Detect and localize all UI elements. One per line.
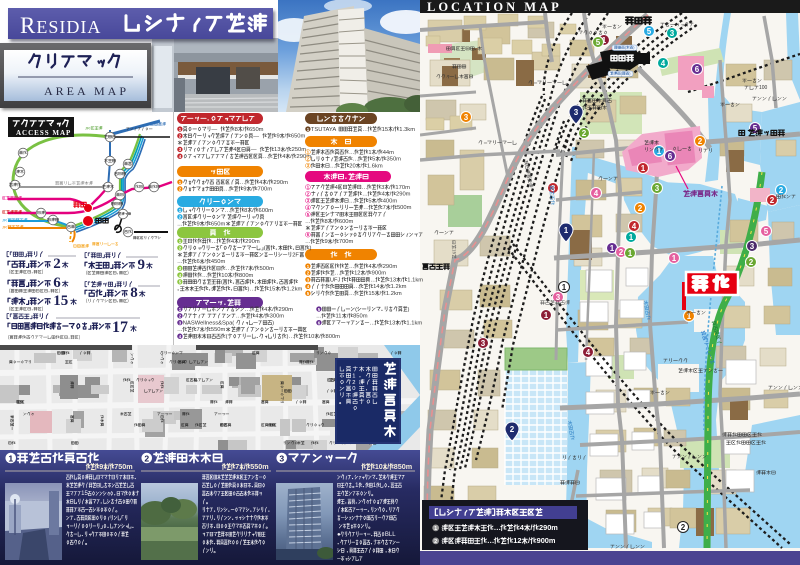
svg-text:500m: 500m xyxy=(259,266,274,272)
svg-text:15: 15 xyxy=(81,491,88,497)
svg-text:…: … xyxy=(363,205,369,211)
svg-text:/: / xyxy=(204,327,206,333)
svg-text:290m: 290m xyxy=(245,239,260,245)
svg-text:290m: 290m xyxy=(278,307,293,313)
svg-text:450m: 450m xyxy=(211,259,226,265)
svg-text:/: / xyxy=(319,334,321,340)
svg-text:/: / xyxy=(380,291,382,297)
svg-text:10: 10 xyxy=(221,273,227,279)
svg-text:350m: 350m xyxy=(387,157,402,163)
svg-text:250m: 250m xyxy=(292,147,307,153)
svg-text:…: … xyxy=(177,327,183,333)
svg-text:850m: 850m xyxy=(353,314,368,320)
svg-text:0: 0 xyxy=(352,386,355,392)
svg-text:3: 3 xyxy=(381,185,384,191)
svg-text:9: 9 xyxy=(324,239,327,245)
svg-text:AREA MAP: AREA MAP xyxy=(44,84,129,98)
svg-text:/: / xyxy=(263,314,265,320)
svg-text:4: 4 xyxy=(368,264,372,270)
svg-text:…: … xyxy=(225,208,231,214)
svg-text:…: … xyxy=(211,239,217,245)
svg-text:—: — xyxy=(211,127,217,133)
svg-text:8: 8 xyxy=(235,127,238,133)
svg-text:)…: )… xyxy=(248,286,256,292)
svg-text:/: / xyxy=(400,320,402,326)
svg-text:…: … xyxy=(226,266,232,272)
svg-text:/: / xyxy=(401,277,403,283)
svg-text:600m: 600m xyxy=(339,219,354,225)
svg-text:1: 1 xyxy=(368,150,371,156)
svg-text:…: … xyxy=(177,221,183,227)
svg-text:1: 1 xyxy=(373,483,377,489)
svg-text:…: … xyxy=(305,219,311,225)
svg-text:…: … xyxy=(349,291,355,297)
svg-text:●: ● xyxy=(337,532,341,538)
svg-text:8: 8 xyxy=(244,208,247,214)
svg-text:(: ( xyxy=(9,269,11,274)
svg-text:600m: 600m xyxy=(259,208,274,214)
svg-text:8: 8 xyxy=(130,285,138,301)
svg-text:1.2km: 1.2km xyxy=(287,286,303,292)
svg-text:700m: 700m xyxy=(258,187,273,193)
svg-text:…: … xyxy=(369,320,375,326)
svg-text:/: / xyxy=(393,127,395,133)
svg-text:5: 5 xyxy=(372,157,375,163)
svg-text:TSUTAYA: TSUTAYA xyxy=(311,127,337,133)
svg-text:): ) xyxy=(42,269,44,274)
svg-text:/: / xyxy=(272,307,274,313)
svg-text:/: / xyxy=(380,157,382,163)
svg-text:…: … xyxy=(362,185,368,191)
svg-text:…: … xyxy=(349,150,355,156)
svg-text:2: 2 xyxy=(53,256,61,272)
svg-text:/: / xyxy=(267,180,269,186)
svg-text:/: / xyxy=(332,239,334,245)
svg-text:1.3km: 1.3km xyxy=(399,127,415,133)
svg-text:BLL: BLL xyxy=(385,532,396,538)
svg-text:6: 6 xyxy=(196,259,199,265)
svg-text:): ) xyxy=(127,298,129,303)
svg-text:4: 4 xyxy=(233,147,237,153)
svg-text:/: / xyxy=(204,221,206,227)
svg-text:10: 10 xyxy=(308,334,314,340)
svg-text:/: / xyxy=(280,286,282,292)
svg-text:/: / xyxy=(284,134,286,140)
svg-text:…: … xyxy=(335,271,341,277)
svg-text:10: 10 xyxy=(375,462,383,471)
svg-text:…: … xyxy=(236,314,242,320)
svg-text:/: / xyxy=(347,314,349,320)
svg-text:(: ( xyxy=(9,288,11,293)
svg-text:…: … xyxy=(354,284,360,290)
svg-text:…: … xyxy=(224,187,230,193)
svg-text:7: 7 xyxy=(235,462,239,471)
svg-text:4: 4 xyxy=(264,307,268,313)
svg-text:2F: 2F xyxy=(292,252,299,258)
svg-text:4: 4 xyxy=(255,314,259,320)
svg-text:/: / xyxy=(387,462,389,471)
svg-text:/: / xyxy=(290,154,292,160)
svg-text:…: … xyxy=(362,127,368,133)
svg-text:20: 20 xyxy=(349,163,355,169)
svg-text:/: / xyxy=(204,259,206,265)
svg-text:/: / xyxy=(243,127,245,133)
svg-text:650m: 650m xyxy=(211,221,226,227)
svg-text:/: / xyxy=(285,147,287,153)
svg-text:(: ( xyxy=(8,334,10,339)
svg-text:700m: 700m xyxy=(339,239,354,245)
svg-text:800m: 800m xyxy=(239,273,254,279)
svg-text:550m: 550m xyxy=(250,462,268,471)
svg-text:UFJ: UFJ xyxy=(330,277,341,283)
svg-text:7: 7 xyxy=(245,266,248,272)
svg-text:/: / xyxy=(376,150,378,156)
svg-text:/: / xyxy=(332,219,334,225)
svg-text:650m: 650m xyxy=(249,127,264,133)
svg-text:NASWellness&Spa(: NASWellness&Spa( xyxy=(183,320,235,326)
svg-text:11: 11 xyxy=(335,314,341,320)
svg-text:1.1km: 1.1km xyxy=(406,320,422,326)
svg-text:…: … xyxy=(202,273,208,279)
svg-text:…: … xyxy=(349,198,355,204)
svg-text:4: 4 xyxy=(282,154,286,160)
svg-text:1.2km: 1.2km xyxy=(391,284,407,290)
svg-text:…: … xyxy=(177,259,183,265)
svg-text:…: … xyxy=(362,192,368,198)
svg-text:9: 9 xyxy=(243,187,246,193)
svg-text:3: 3 xyxy=(279,453,284,463)
svg-text:4: 4 xyxy=(231,239,235,245)
svg-text:4: 4 xyxy=(382,192,386,198)
svg-text:1.1km: 1.1km xyxy=(407,277,423,283)
svg-text:850m: 850m xyxy=(394,462,412,471)
svg-text:…: … xyxy=(330,163,336,169)
svg-text:/: / xyxy=(389,185,391,191)
svg-text:650m: 650m xyxy=(291,134,306,140)
svg-text:13: 13 xyxy=(274,147,280,153)
svg-text:/: / xyxy=(391,205,393,211)
svg-text:/: / xyxy=(376,264,378,270)
svg-text:1: 1 xyxy=(355,483,359,489)
svg-text:…: … xyxy=(240,180,246,186)
svg-text:/: / xyxy=(244,462,246,471)
svg-text:9: 9 xyxy=(277,134,280,140)
svg-text:—: — xyxy=(251,147,257,153)
svg-text:/: / xyxy=(365,271,367,277)
svg-text:290m: 290m xyxy=(383,264,398,270)
svg-text:…: … xyxy=(349,264,355,270)
svg-text:): ) xyxy=(79,334,81,339)
svg-text:…: … xyxy=(305,239,311,245)
svg-text:500m: 500m xyxy=(397,205,412,211)
svg-text:)…: )… xyxy=(287,334,295,340)
svg-text:15: 15 xyxy=(368,291,374,297)
svg-text:/: / xyxy=(384,284,386,290)
svg-text:1.6km: 1.6km xyxy=(367,163,383,169)
svg-text:4: 4 xyxy=(259,180,263,186)
svg-text:…: … xyxy=(316,314,322,320)
svg-text:(: ( xyxy=(9,306,11,311)
svg-text:/: / xyxy=(390,192,392,198)
svg-text:9: 9 xyxy=(138,257,146,273)
svg-text:1: 1 xyxy=(8,453,13,463)
svg-text:(: ( xyxy=(264,246,266,252)
svg-text:7: 7 xyxy=(196,327,199,333)
svg-text:/: / xyxy=(233,273,235,279)
svg-text:RESIDIA: RESIDIA xyxy=(20,13,101,38)
svg-text:14: 14 xyxy=(373,284,380,290)
svg-text:(: ( xyxy=(221,280,223,286)
svg-text:400m: 400m xyxy=(383,198,398,204)
svg-text:/: / xyxy=(253,266,255,272)
svg-text:…: … xyxy=(370,277,376,283)
svg-text:…: … xyxy=(263,154,269,160)
svg-text:13: 13 xyxy=(390,277,396,283)
svg-text:): ) xyxy=(272,320,274,326)
svg-text:15: 15 xyxy=(53,293,68,309)
svg-text:9: 9 xyxy=(99,462,103,471)
svg-text:(: ( xyxy=(355,307,357,313)
svg-text:): ) xyxy=(42,306,44,311)
svg-text:1.2km: 1.2km xyxy=(386,291,402,297)
svg-text:/: / xyxy=(252,208,254,214)
svg-text:12: 12 xyxy=(354,271,360,277)
svg-text:44m: 44m xyxy=(383,150,394,156)
svg-text:170m: 170m xyxy=(395,185,410,191)
svg-text:/: / xyxy=(239,239,241,245)
svg-text:9: 9 xyxy=(196,221,199,227)
svg-text:(: ( xyxy=(226,334,228,340)
svg-text:(: ( xyxy=(86,270,88,275)
svg-text:/: / xyxy=(251,187,253,193)
svg-text:7: 7 xyxy=(383,205,386,211)
svg-text:(: ( xyxy=(86,298,88,303)
svg-text:): ) xyxy=(407,307,409,313)
svg-text:15: 15 xyxy=(382,127,388,133)
svg-text:1: 1 xyxy=(352,373,355,379)
svg-text:4: 4 xyxy=(335,185,339,191)
svg-text:…: … xyxy=(353,157,359,163)
svg-text:290m: 290m xyxy=(396,192,411,198)
svg-text:800m: 800m xyxy=(326,334,341,340)
svg-text:/: / xyxy=(361,163,363,169)
svg-text:17: 17 xyxy=(112,319,128,336)
svg-text:2: 2 xyxy=(352,380,355,386)
svg-text:750m: 750m xyxy=(114,462,132,471)
svg-text:): ) xyxy=(310,246,312,252)
svg-text:2: 2 xyxy=(144,453,149,463)
svg-text:5: 5 xyxy=(368,198,371,204)
svg-text:13: 13 xyxy=(389,320,395,326)
svg-text:—: — xyxy=(253,134,259,140)
svg-text:300m: 300m xyxy=(270,314,285,320)
svg-text:550m: 550m xyxy=(211,327,226,333)
svg-text:/: / xyxy=(376,198,378,204)
svg-text:…: … xyxy=(245,307,251,313)
svg-text:/: / xyxy=(108,462,110,471)
svg-text:): ) xyxy=(127,270,129,275)
svg-text:15: 15 xyxy=(269,286,275,292)
svg-text:290m: 290m xyxy=(273,180,288,186)
svg-text:900m: 900m xyxy=(372,271,387,277)
svg-text:8: 8 xyxy=(324,219,327,225)
